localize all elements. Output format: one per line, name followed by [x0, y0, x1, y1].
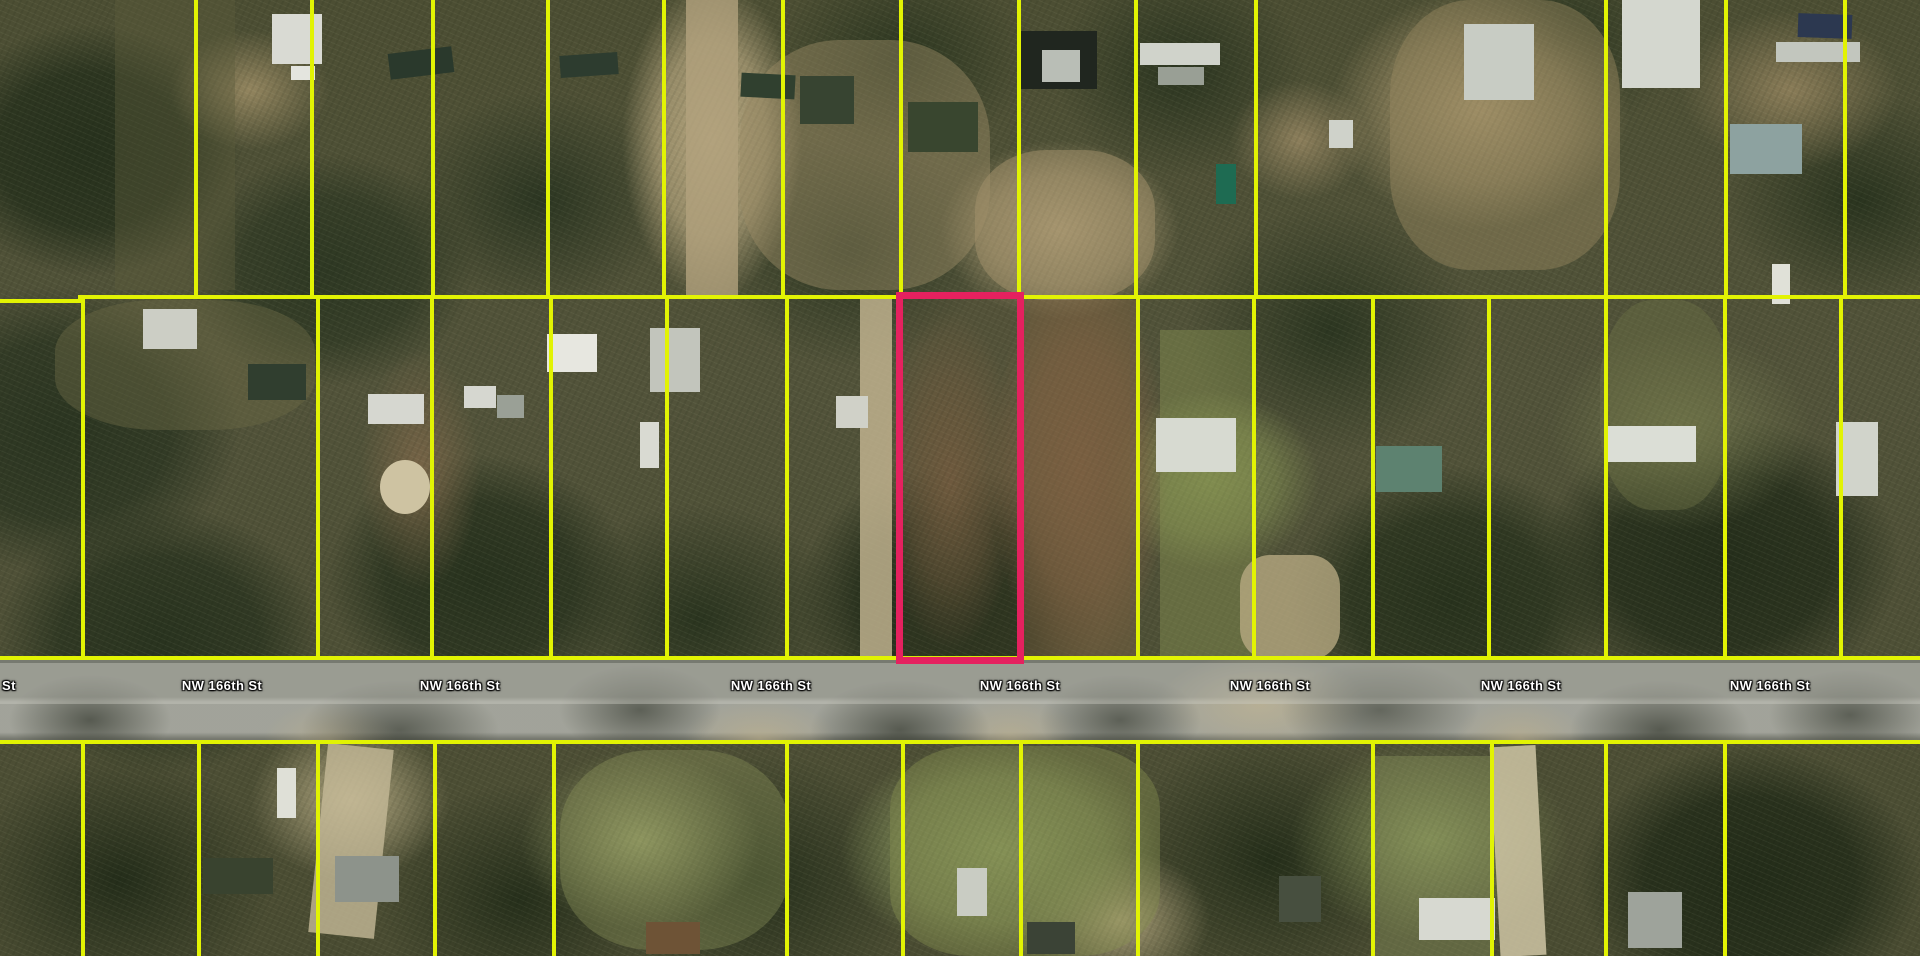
parcel-line-horizontal — [0, 299, 82, 303]
structure-roof — [1419, 898, 1495, 940]
structure-roof — [908, 102, 978, 152]
vehicle — [277, 768, 296, 818]
parcel-line-vertical — [899, 0, 903, 299]
parcel-line-vertical — [1017, 0, 1021, 299]
parcel-line-vertical — [433, 744, 437, 956]
structure-roof — [650, 328, 700, 392]
structure-roof — [464, 386, 496, 408]
terrain-patch — [115, 0, 235, 290]
structure-roof — [203, 858, 273, 894]
structure-roof — [1158, 67, 1204, 85]
parcel-line-vertical — [1487, 299, 1491, 660]
parcel-line-vertical — [431, 0, 435, 299]
road-name-label-partial: St — [2, 678, 16, 693]
structure-roof — [547, 334, 597, 372]
structure-roof — [1608, 426, 1696, 462]
parcel-line-vertical — [1843, 0, 1847, 299]
driveway — [860, 298, 892, 660]
road-label-band — [0, 663, 1920, 704]
parcel-line-vertical — [1723, 744, 1727, 956]
road-name-label: NW 166th St — [420, 678, 500, 693]
parcel-line-vertical — [1136, 744, 1140, 956]
structure-roof — [248, 364, 306, 400]
parcel-line-vertical — [1254, 0, 1258, 299]
structure-roof — [272, 14, 322, 64]
structure-roof — [1622, 0, 1700, 88]
parcel-line-vertical — [546, 0, 550, 299]
parcel-line-vertical — [1604, 744, 1608, 956]
structure-roof — [1730, 124, 1802, 174]
structure-roof — [740, 73, 795, 100]
structure-roof — [957, 868, 987, 916]
road-name-label: NW 166th St — [182, 678, 262, 693]
parcel-line-vertical — [549, 299, 553, 660]
structure-roof — [836, 396, 868, 428]
road-name-label: NW 166th St — [1481, 678, 1561, 693]
terrain-patch — [890, 746, 1160, 956]
road-name-label: NW 166th St — [1230, 678, 1310, 693]
parcel-line-vertical — [310, 0, 314, 299]
structure-roof — [646, 922, 700, 954]
terrain-patch — [1020, 300, 1136, 660]
parcel-line-vertical — [1723, 299, 1727, 660]
parcel-line-vertical — [785, 299, 789, 660]
terrain-patch — [975, 150, 1155, 300]
parcel-line-vertical — [1604, 299, 1608, 660]
structure-roof — [335, 856, 399, 902]
parcel-line-vertical — [316, 299, 320, 660]
terrain-patch — [1160, 330, 1252, 660]
parcel-line-vertical — [316, 744, 320, 956]
parcel-line-vertical — [785, 744, 789, 956]
parcel-line-vertical — [1019, 744, 1023, 956]
structure-roof — [388, 46, 455, 80]
structure-roof — [559, 52, 618, 78]
parcel-line-vertical — [781, 0, 785, 299]
parcel-line-vertical — [665, 299, 669, 660]
terrain-patch — [380, 460, 430, 514]
parcel-line-vertical — [552, 744, 556, 956]
parcel-line-vertical — [81, 299, 85, 660]
structure-roof — [1140, 43, 1220, 65]
parcel-line-vertical — [1136, 299, 1140, 660]
parcel-line-vertical — [1371, 744, 1375, 956]
driveway — [308, 743, 393, 939]
structure-roof — [1376, 446, 1442, 492]
parcel-line-vertical — [1839, 299, 1843, 660]
vehicle — [1329, 120, 1353, 148]
structure-roof — [143, 309, 197, 349]
structure-roof — [497, 395, 524, 418]
structure-roof — [368, 394, 424, 424]
structure-roof — [1628, 892, 1682, 948]
parcel-line-vertical — [1604, 0, 1608, 299]
structure-roof — [1776, 42, 1860, 62]
terrain-patch — [1600, 300, 1730, 510]
structure-roof — [1027, 922, 1075, 954]
parcel-line-vertical — [194, 0, 198, 299]
road-name-label: NW 166th St — [731, 678, 811, 693]
parcel-line-vertical — [1724, 0, 1728, 299]
parcel-line-vertical — [197, 744, 201, 956]
structure-roof — [1279, 876, 1321, 922]
parcel-line-vertical — [1134, 0, 1138, 299]
parcel-map-canvas[interactable]: NW 166th StNW 166th StNW 166th StNW 166t… — [0, 0, 1920, 956]
parcel-line-vertical — [1371, 299, 1375, 660]
parcel-line-vertical — [81, 744, 85, 956]
structure-roof — [1464, 24, 1534, 100]
parcel-line-vertical — [430, 299, 434, 660]
terrain-patch — [560, 750, 790, 950]
structure-roof — [800, 76, 854, 124]
structure-roof — [1216, 164, 1236, 204]
vehicle — [640, 422, 659, 468]
highlighted-parcel[interactable] — [896, 292, 1024, 664]
structure-roof — [1156, 418, 1236, 472]
road-name-label: NW 166th St — [1730, 678, 1810, 693]
parcel-line-vertical — [901, 744, 905, 956]
driveway — [1490, 745, 1547, 956]
driveway — [686, 0, 738, 298]
road-name-label: NW 166th St — [980, 678, 1060, 693]
parcel-line-vertical — [1252, 299, 1256, 660]
parcel-line-horizontal — [0, 740, 1920, 744]
parcel-line-vertical — [662, 0, 666, 299]
structure-roof — [1042, 50, 1080, 82]
parcel-line-vertical — [1490, 744, 1494, 956]
